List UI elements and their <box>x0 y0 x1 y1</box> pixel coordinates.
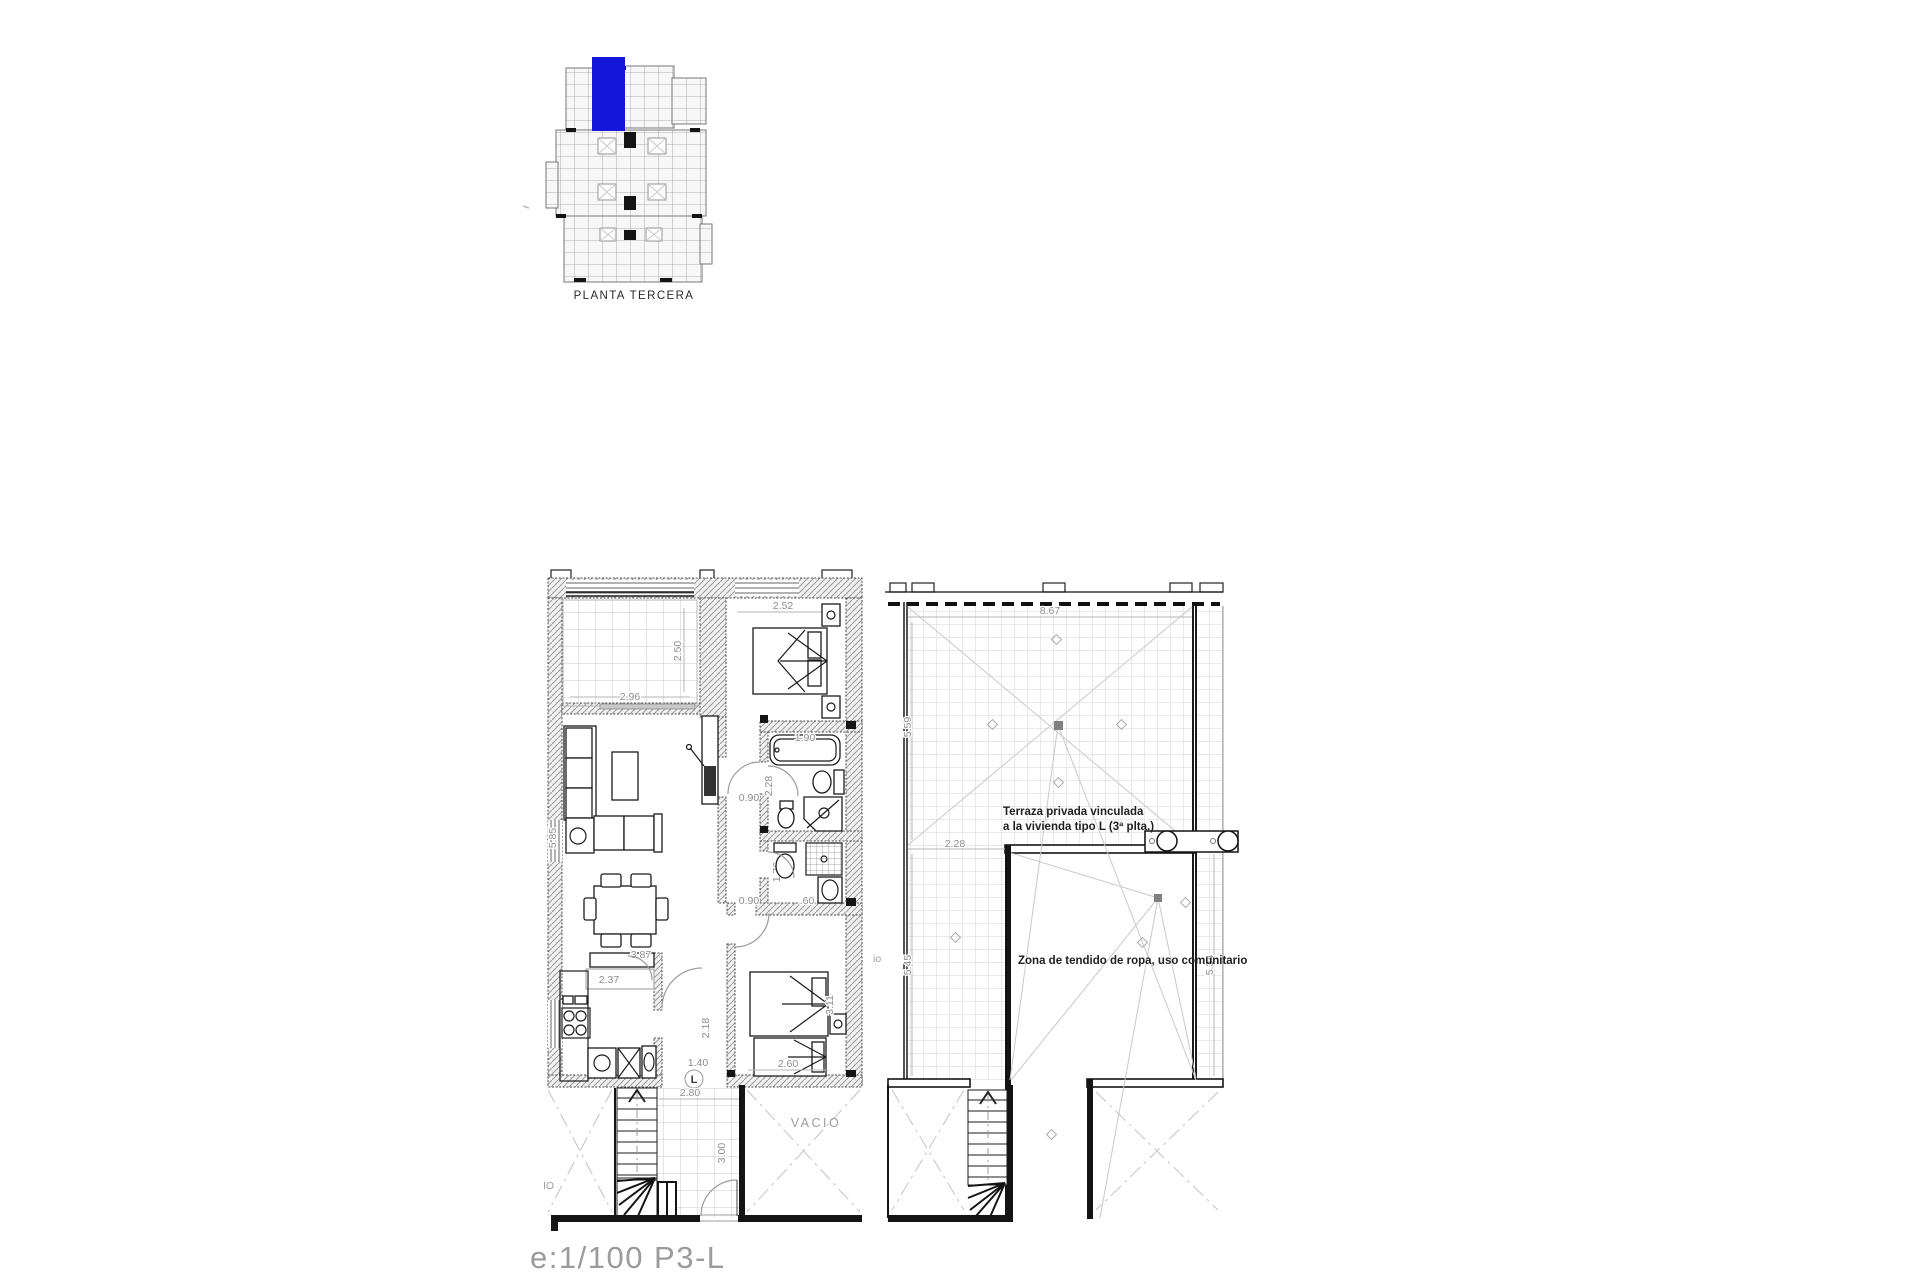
balcony-terrace: 2.50 2.96 <box>563 592 697 709</box>
highlighted-unit <box>592 57 625 131</box>
bench-planter <box>1145 831 1238 852</box>
terrace-edge-partial-label: io <box>873 953 881 965</box>
shower-2 <box>806 843 842 875</box>
communal-clothesline-note: Zona de tendido de ropa, uso comunitario <box>1018 955 1247 967</box>
dim-stairs-depth: 3.00 <box>716 1143 728 1164</box>
dim-basin: .60 <box>800 895 815 907</box>
shower <box>804 797 842 831</box>
bidet <box>778 801 794 828</box>
kitchen-sink <box>588 1046 656 1078</box>
dim-bathtub: 1.90 <box>795 732 816 744</box>
private-terrace-note-line1: Terraza privada vinculada <box>1003 806 1144 818</box>
dim-terrace-left-lower: 5.45 <box>902 955 914 976</box>
void-right-label: VACIO <box>791 1116 841 1130</box>
scale-label: e:1/100 P3-L <box>530 1240 726 1275</box>
dim-stairs-width: 2.80 <box>680 1087 701 1099</box>
dim-bedroom2-width: 2.60 <box>778 1058 799 1070</box>
terrace-tiles-left-column <box>908 845 1008 1080</box>
dim-living-height: 5.85 <box>547 828 559 849</box>
closet <box>658 1182 676 1216</box>
private-terrace-note-line2: a la vivienda tipo L (3ª plta.) <box>1003 821 1154 833</box>
washbasin <box>818 877 842 903</box>
dim-terrace-top-width: 8.67 <box>1040 605 1061 617</box>
floorplan-sheet: PLANTA TERCERA <box>0 0 1920 1280</box>
dim-kitchen-counter: 2.37 <box>599 974 620 986</box>
dim-hall-depth: 2.18 <box>700 1018 712 1039</box>
apartment-stairwell: 2.80 3.00 <box>615 1085 745 1222</box>
dim-terrace-width: 2.96 <box>620 691 641 703</box>
toilet-2 <box>774 843 796 878</box>
dim-bedroom2-depth: 3.11 <box>824 995 836 1015</box>
key-plan-label: PLANTA TERCERA <box>574 290 695 302</box>
dim-terrace-depth: 2.50 <box>672 641 684 662</box>
void-left-partial-label: IO <box>543 1180 554 1192</box>
double-bed <box>753 628 827 694</box>
dim-hall-door: 0.90 <box>739 792 760 804</box>
dim-bathroom1-depth: 2.28 <box>763 776 775 797</box>
dim-hall-width: 1.40 <box>688 1057 709 1069</box>
toilet <box>813 770 844 794</box>
dim-bathroom2-door: 0.90 <box>739 895 760 907</box>
unit-type-letter: L <box>691 1074 698 1086</box>
dim-terrace-left-offset: 2.28 <box>945 838 966 850</box>
single-bed-a <box>750 972 828 1036</box>
dim-terrace-left-upper: 5.59 <box>902 717 914 738</box>
dim-bedroom1-width: 2.52 <box>773 600 794 612</box>
coffee-table <box>612 752 638 800</box>
